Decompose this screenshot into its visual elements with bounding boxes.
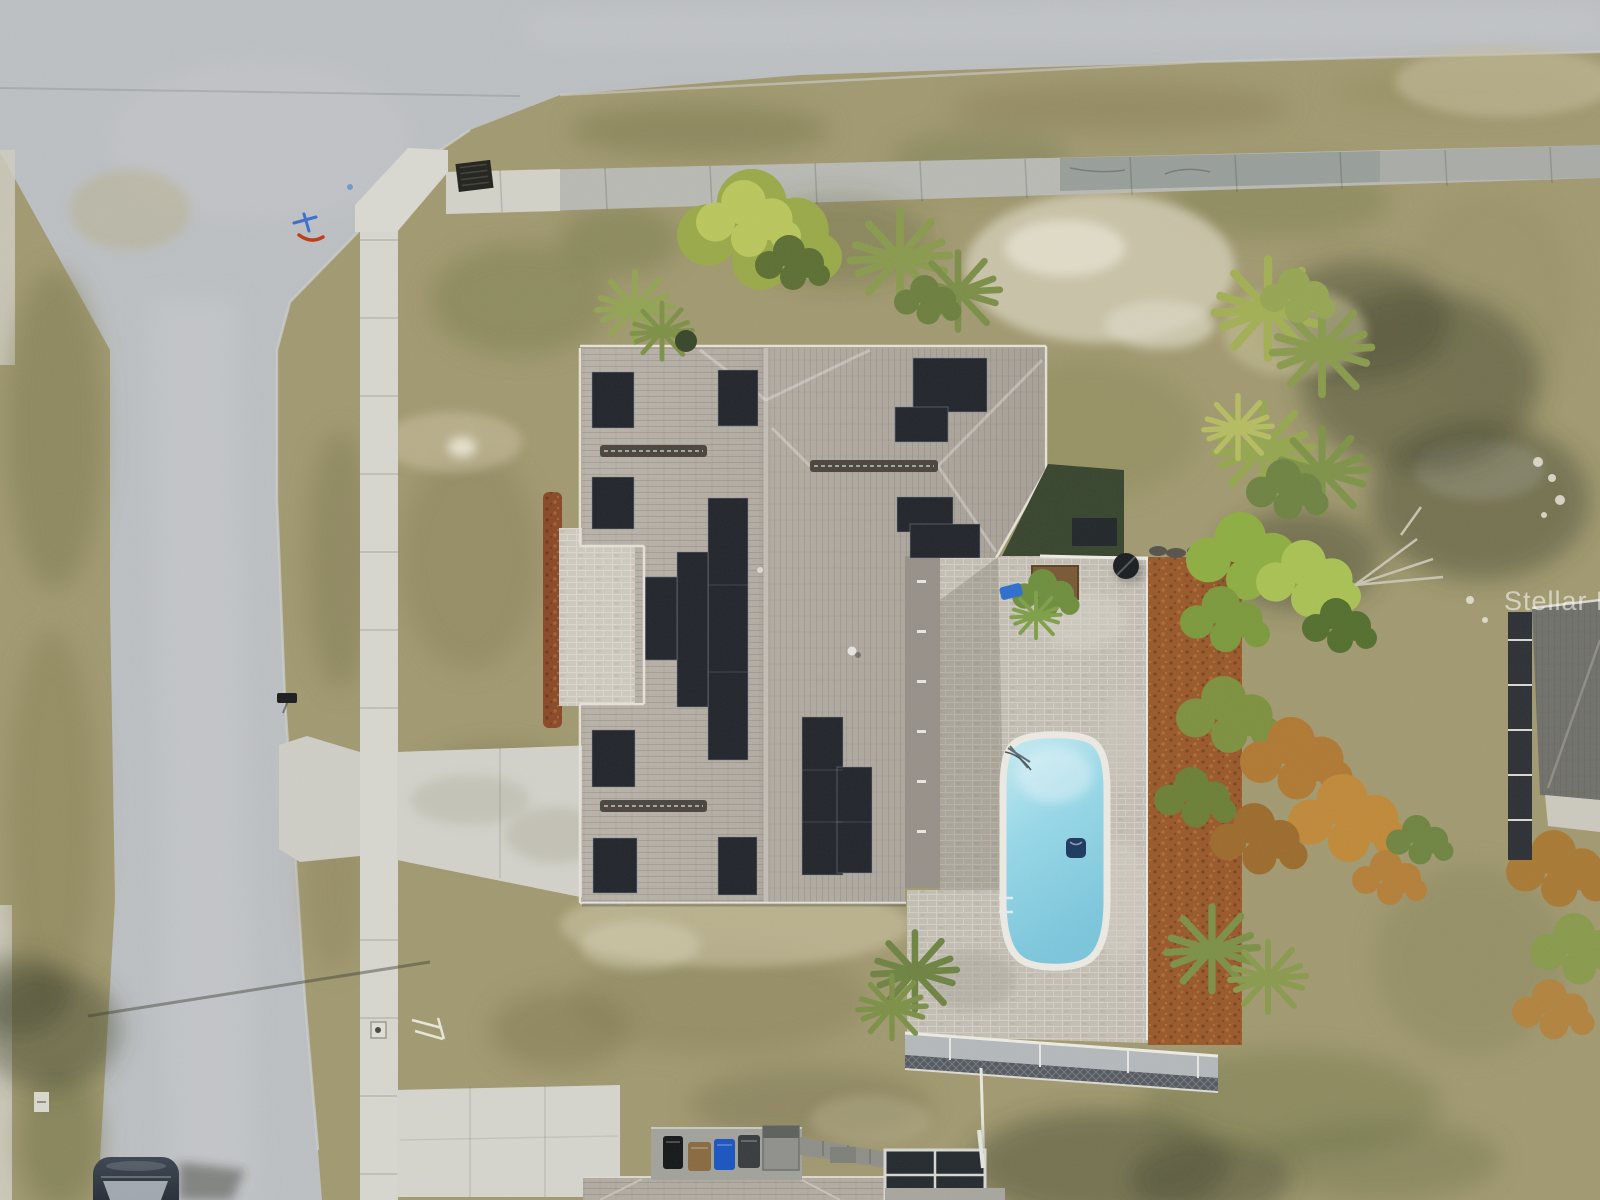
aerial-photo: Stellar MLS: [0, 0, 1600, 1200]
watermark-text: Stellar MLS: [1504, 586, 1600, 616]
aerial-photo-canvas: Stellar MLS: [0, 0, 1600, 1200]
grain-overlay: [0, 0, 1600, 1200]
